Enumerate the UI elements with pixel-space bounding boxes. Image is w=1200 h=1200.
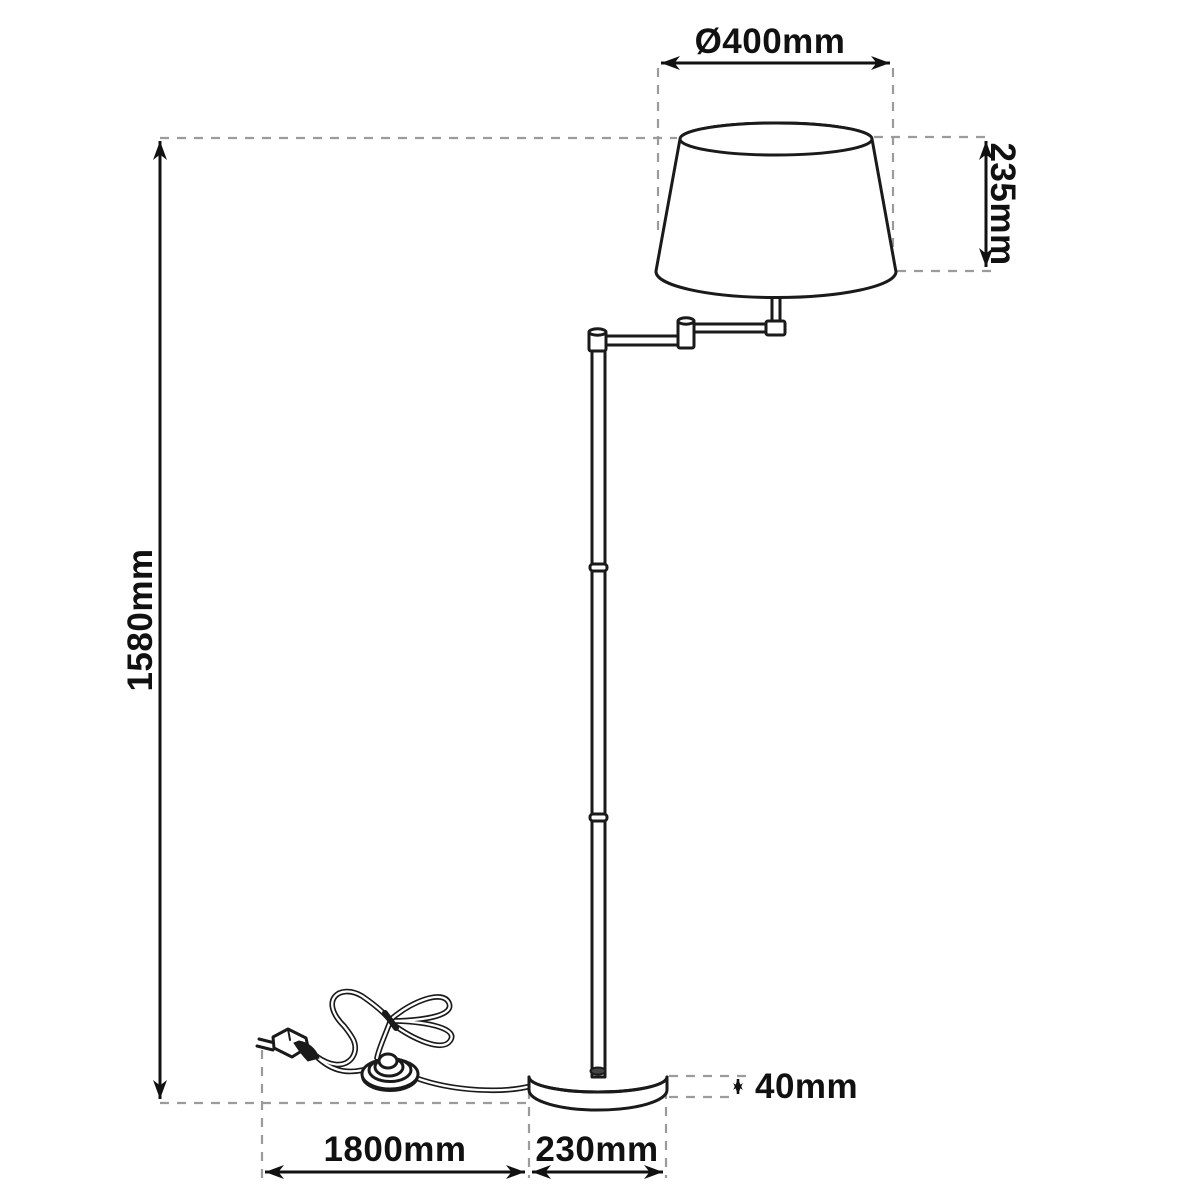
- power-cable: [257, 992, 531, 1091]
- swing-arm-elbow: [766, 321, 785, 335]
- power-plug: [257, 1029, 319, 1061]
- base-diameter-label: 230mm: [535, 1130, 658, 1169]
- cable-runs: [316, 992, 531, 1091]
- dimension-shade-diameter: Ø400mm: [661, 22, 890, 63]
- dimension-base-height: 40mm: [738, 1067, 858, 1106]
- lamp-shade-top-rim: [680, 123, 872, 155]
- floor-lamp-dimension-diagram: Ø400mm 235mm 1580mm 1800mm 230mm 40mm: [0, 0, 1200, 1200]
- dimension-base-diameter: 230mm: [532, 1130, 663, 1172]
- dimension-shade-height: 235mm: [983, 141, 1022, 267]
- shade-diameter-label: Ø400mm: [695, 22, 846, 61]
- floor-lamp: [529, 123, 896, 1110]
- foot-switch: [362, 1054, 418, 1091]
- shade-height-label: 235mm: [983, 142, 1022, 265]
- swing-arm-upper: [692, 324, 772, 332]
- lamp-post: [590, 351, 607, 1077]
- dimension-cable-length: 1800mm: [265, 1130, 525, 1172]
- diagram-canvas: Ø400mm 235mm 1580mm 1800mm 230mm 40mm: [0, 0, 1200, 1200]
- total-height-label: 1580mm: [121, 548, 160, 691]
- plug-pin-icon: [257, 1046, 273, 1050]
- post-joint: [590, 564, 607, 571]
- post-socket: [591, 1068, 606, 1075]
- cable-length-label: 1800mm: [323, 1130, 466, 1169]
- foot-switch-button: [379, 1054, 397, 1068]
- lamp-shade: [656, 123, 896, 298]
- post-joint: [590, 814, 607, 821]
- base-height-label: 40mm: [755, 1067, 858, 1106]
- swing-arm: [589, 318, 785, 351]
- dimension-total-height: 1580mm: [121, 141, 160, 1099]
- swing-arm-lower: [603, 336, 682, 345]
- lamp-base: [529, 1068, 667, 1111]
